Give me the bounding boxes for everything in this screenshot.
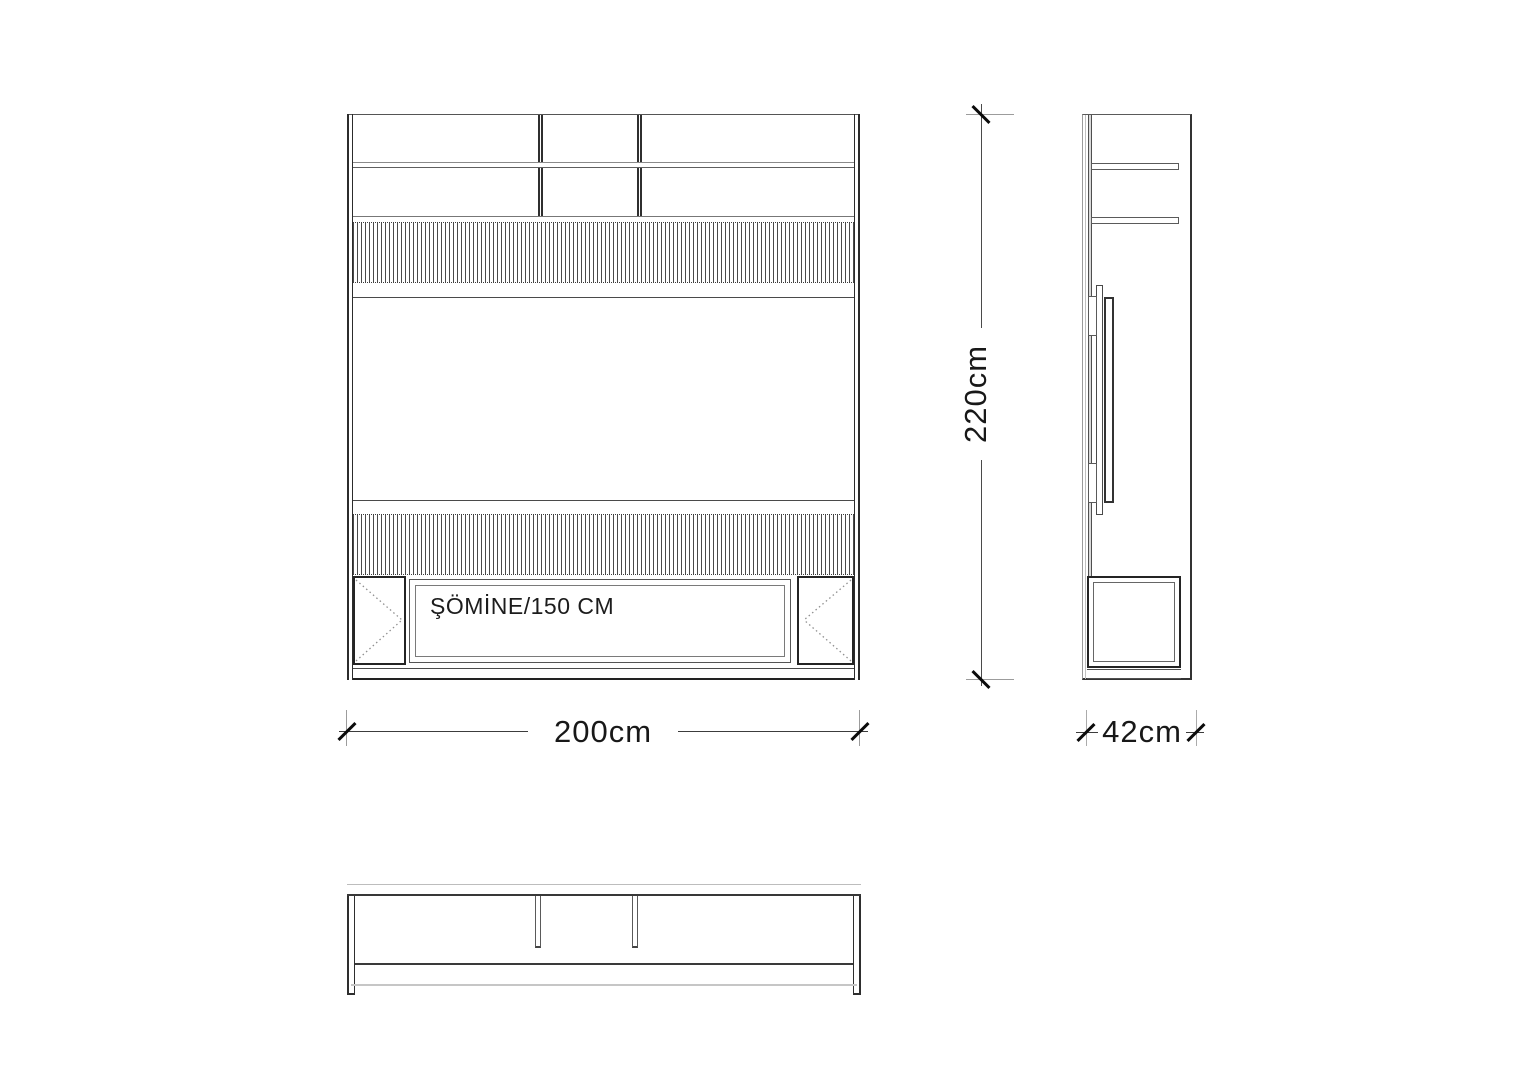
plan-right-side-panel	[853, 896, 861, 995]
technical-drawing-canvas: ŞÖMİNE/150 CM 200cm	[0, 0, 1528, 1080]
plan-back-panel-line	[347, 894, 861, 896]
extension-line	[966, 114, 1014, 115]
door-swing-icon	[355, 578, 404, 663]
depth-dimension-label: 42cm	[1098, 714, 1186, 750]
extension-line	[966, 679, 1014, 680]
right-cabinet-door	[797, 576, 854, 665]
side-tv-panel-profile	[1104, 297, 1114, 503]
fireplace-label: ŞÖMİNE/150 CM	[430, 593, 614, 620]
side-back-panel	[1088, 115, 1092, 576]
front-right-side-panel	[854, 114, 860, 680]
door-swing-icon	[799, 578, 852, 663]
plan-divider	[535, 896, 541, 948]
plan-view	[347, 884, 861, 995]
side-cabinet-profile-inner	[1093, 582, 1175, 662]
side-shelf-profile	[1091, 217, 1179, 224]
plan-front-edge	[355, 963, 853, 965]
width-dimension-label: 200cm	[528, 713, 678, 750]
side-cabinet-profile	[1087, 576, 1181, 668]
plan-left-side-panel	[347, 896, 355, 995]
side-mount-bracket	[1088, 463, 1097, 503]
fluted-panel-band-lower	[353, 514, 854, 575]
height-dimension-label: 220cm	[957, 328, 995, 460]
plan-divider	[632, 896, 638, 948]
front-view: ŞÖMİNE/150 CM	[347, 114, 860, 680]
shelf-board	[353, 162, 854, 168]
side-shelf-profile	[1091, 163, 1179, 170]
side-left-edge-line	[1085, 115, 1086, 679]
shelf-line	[353, 500, 854, 501]
shelf-line	[353, 297, 854, 298]
front-base-plinth	[353, 668, 854, 680]
shelf-divider	[538, 115, 543, 162]
side-mount-bracket	[1088, 296, 1097, 336]
shelf-divider	[637, 168, 642, 216]
fluted-panel-band-upper	[353, 222, 854, 283]
plan-back-edge	[347, 884, 861, 885]
shelf-divider	[538, 168, 543, 216]
side-base-plinth	[1087, 669, 1181, 679]
plan-overhang-line	[351, 984, 857, 986]
fireplace-box-inner: ŞÖMİNE/150 CM	[415, 585, 785, 657]
front-top-edge	[347, 114, 860, 115]
shelf-divider	[637, 115, 642, 162]
shelf-line	[353, 216, 854, 217]
left-cabinet-door	[353, 576, 406, 665]
fireplace-box: ŞÖMİNE/150 CM	[409, 579, 791, 663]
side-view	[1082, 114, 1192, 680]
side-panel-profile	[1096, 285, 1103, 515]
